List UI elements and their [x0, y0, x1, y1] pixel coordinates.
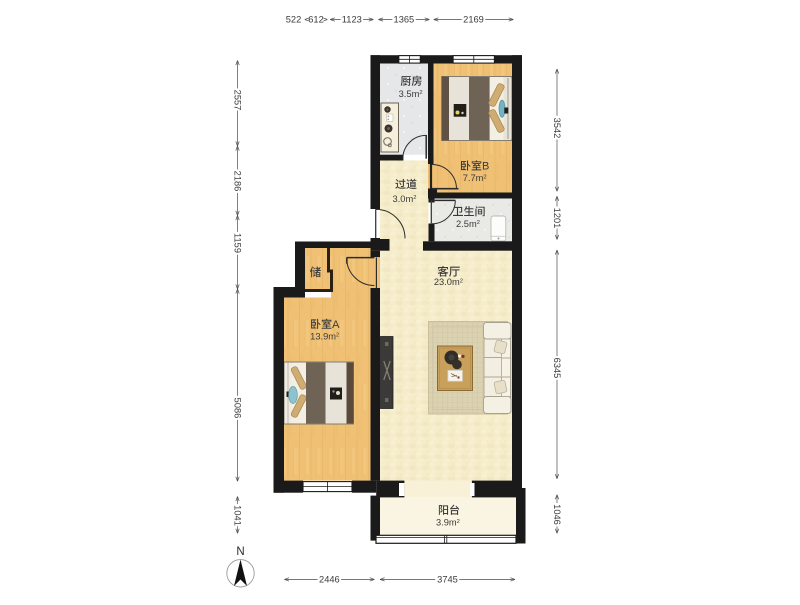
svg-text:N: N — [236, 546, 244, 558]
svg-text:7.7m2: 7.7m2 — [463, 173, 487, 183]
svg-text:2557: 2557 — [233, 90, 243, 111]
svg-text:2.5m2: 2.5m2 — [456, 219, 480, 229]
svg-text:3745: 3745 — [437, 575, 458, 585]
svg-text:2169: 2169 — [463, 15, 484, 25]
svg-text:3542: 3542 — [552, 118, 562, 139]
svg-text:1159: 1159 — [233, 233, 243, 253]
svg-text:1365: 1365 — [394, 15, 415, 25]
svg-text:612: 612 — [308, 15, 324, 25]
svg-text:5086: 5086 — [233, 398, 243, 419]
svg-text:1046: 1046 — [552, 504, 562, 525]
svg-text:6345: 6345 — [552, 358, 562, 379]
svg-text:23.0m2: 23.0m2 — [434, 277, 463, 287]
svg-text:3.5m2: 3.5m2 — [399, 89, 423, 99]
svg-text:3.0m2: 3.0m2 — [393, 194, 417, 204]
svg-text:B: B — [482, 161, 489, 173]
svg-text:1041: 1041 — [233, 505, 243, 526]
svg-text:3.9m2: 3.9m2 — [436, 518, 460, 528]
svg-text:13.9m2: 13.9m2 — [310, 331, 339, 341]
svg-text:1123: 1123 — [342, 15, 362, 25]
svg-text:2446: 2446 — [319, 575, 340, 585]
svg-text:A: A — [332, 319, 340, 331]
svg-text:522: 522 — [286, 15, 302, 25]
svg-text:2186: 2186 — [233, 171, 243, 192]
svg-text:1201: 1201 — [552, 208, 562, 229]
